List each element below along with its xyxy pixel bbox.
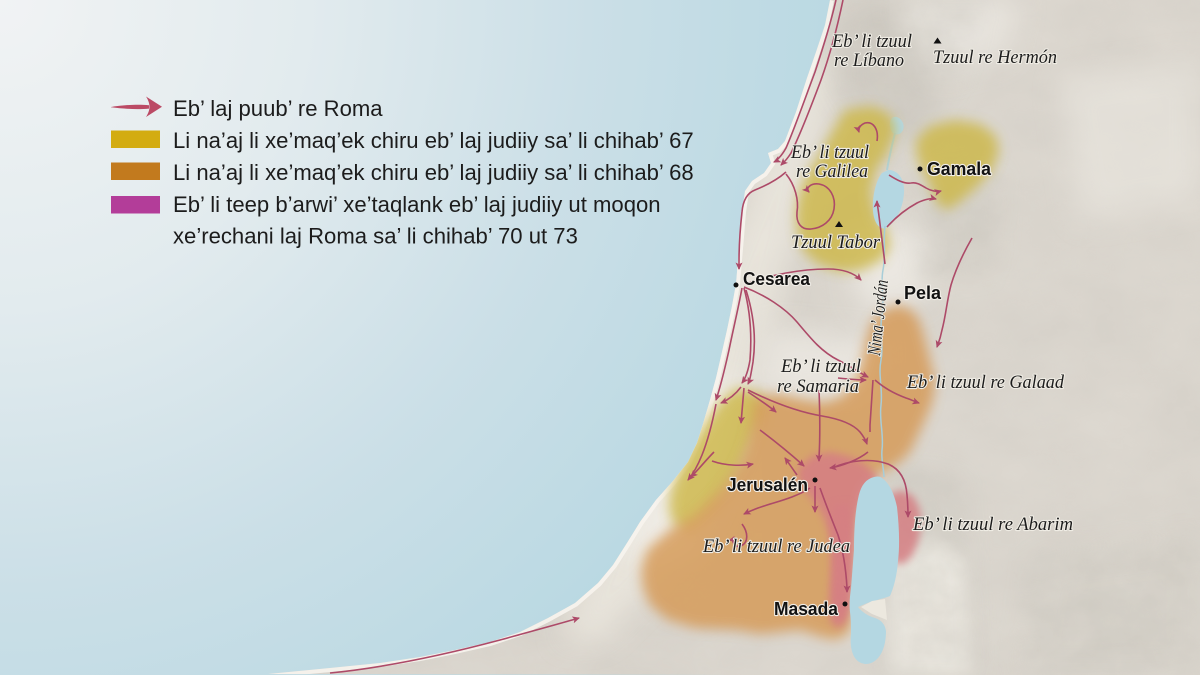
svg-text:Cesarea: Cesarea — [743, 268, 811, 289]
svg-text:Eb’ li tzuul re Galaad: Eb’ li tzuul re Galaad — [906, 372, 1064, 393]
svg-text:xe’rechani laj Roma sa’ li chi: xe’rechani laj Roma sa’ li chihab’ 70 ut… — [173, 224, 578, 249]
svg-text:Eb’ li teep b’arwi’ xe’taqlank: Eb’ li teep b’arwi’ xe’taqlank eb’ laj j… — [173, 192, 661, 217]
svg-text:Eb’ li tzuul: Eb’ li tzuul — [831, 31, 912, 52]
svg-text:Eb’ laj puub’ re Roma: Eb’ laj puub’ re Roma — [173, 96, 383, 121]
svg-text:re Samaria: re Samaria — [777, 376, 859, 397]
svg-text:Eb’ li tzuul re Judea: Eb’ li tzuul re Judea — [702, 536, 850, 557]
svg-text:re Líbano: re Líbano — [834, 50, 904, 71]
svg-text:Tzuul Tabor: Tzuul Tabor — [791, 232, 881, 253]
svg-text:re Galilea: re Galilea — [796, 161, 868, 182]
svg-text:Pela: Pela — [904, 282, 942, 303]
svg-text:Eb’ li tzuul: Eb’ li tzuul — [780, 356, 861, 377]
svg-text:Gamala: Gamala — [927, 158, 992, 179]
svg-text:Tzuul re Hermón: Tzuul re Hermón — [933, 47, 1057, 68]
svg-text:Li na’aj li xe’maq’ek chiru eb: Li na’aj li xe’maq’ek chiru eb’ laj judi… — [173, 160, 694, 185]
svg-text:Masada: Masada — [774, 598, 839, 619]
svg-text:Jerusalén: Jerusalén — [727, 474, 808, 495]
svg-text:Li na’aj li xe’maq’ek chiru eb: Li na’aj li xe’maq’ek chiru eb’ laj judi… — [173, 128, 694, 153]
svg-text:Eb’ li tzuul re Abarim: Eb’ li tzuul re Abarim — [912, 514, 1073, 535]
svg-text:Eb’ li tzuul: Eb’ li tzuul — [790, 142, 869, 163]
